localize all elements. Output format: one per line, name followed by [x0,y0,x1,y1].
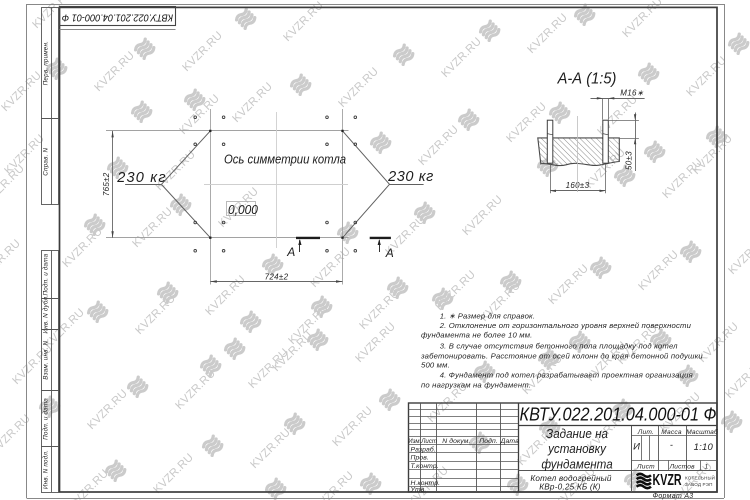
svg-text:Подп. и дата: Подп. и дата [42,253,50,295]
svg-text:Дата: Дата [500,438,519,445]
svg-text:Подп. и дата: Подп. и дата [42,398,50,440]
svg-text:Задание на: Задание на [546,426,608,440]
svg-text:Перв. примен.: Перв. примен. [43,41,50,85]
svg-text:установку: установку [547,441,607,455]
svg-text:Инв. N дубл.: Инв. N дубл. [42,295,50,334]
svg-text:Формат А3: Формат А3 [652,493,693,500]
svg-text:N докум.: N докум. [442,437,470,445]
svg-text:500 мм.: 500 мм. [421,360,450,369]
svg-text:Изм.Лист: Изм.Лист [408,438,437,445]
svg-text:КВр-0,25 КБ (К): КВр-0,25 КБ (К) [539,482,601,491]
svg-text:Подп.: Подп. [479,437,498,445]
svg-text:KVZR: KVZR [653,471,682,488]
svg-text:Пров.: Пров. [411,455,429,462]
svg-text:4. Фундамент под котел разраба: 4. Фундамент под котел разрабатывает про… [440,371,693,380]
svg-text:Лист: Лист [636,463,655,470]
svg-text:1: 1 [704,463,708,470]
svg-text:230 кг: 230 кг [387,169,434,185]
svg-text:фундамента не более 10 мм.: фундамента не более 10 мм. [421,331,533,340]
svg-text:765±2: 765±2 [102,172,111,196]
svg-text:0,000: 0,000 [228,202,258,217]
svg-text:2. Отклонение от горизонтально: 2. Отклонение от горизонтального уровня … [439,321,692,330]
svg-text:Ось симметрии котла: Ось симметрии котла [224,152,346,167]
svg-text:А: А [385,246,394,260]
svg-text:724±2: 724±2 [265,272,289,281]
svg-text:ЗАВОД РЭП: ЗАВОД РЭП [685,482,713,487]
svg-text:КВТУ.022.201.04.000-01 Ф: КВТУ.022.201.04.000-01 Ф [62,11,174,22]
svg-text:-: - [670,440,673,450]
svg-text:А-А (1:5): А-А (1:5) [557,70,617,87]
svg-text:Лит.: Лит. [637,429,654,436]
svg-text:КОТЕЛЬНЫЙ: КОТЕЛЬНЫЙ [685,473,715,480]
svg-text:А: А [286,245,295,259]
svg-text:КВТУ.022.201.04.000-01 Ф: КВТУ.022.201.04.000-01 Ф [520,403,717,424]
svg-text:Утв.: Утв. [410,486,427,493]
svg-text:забетонировать. Расстояние от: забетонировать. Расстояние от осей колон… [420,352,703,361]
svg-text:230 кг: 230 кг [116,170,166,186]
svg-text:Масса: Масса [661,429,682,436]
svg-text:Т.контр.: Т.контр. [411,463,439,470]
svg-text:по нагрузкам на фундамент.: по нагрузкам на фундамент. [421,380,531,389]
svg-text:1:10: 1:10 [694,442,714,453]
svg-text:Инв. N подл.: Инв. N подл. [42,450,50,489]
svg-text:Взам. инв. N: Взам. инв. N [43,340,50,379]
svg-text:50±3: 50±3 [625,151,634,170]
svg-text:И: И [633,442,640,453]
svg-text:Разраб.: Разраб. [411,445,436,453]
svg-text:3. В случае отсутствия бетонно: 3. В случае отсутствия бетонного пола пл… [440,342,678,351]
svg-text:фундамента: фундамента [541,457,613,471]
svg-text:М16∗: М16∗ [620,89,643,98]
svg-text:Листов: Листов [669,463,696,470]
svg-text:Масштаб: Масштаб [686,428,718,436]
svg-text:1. ∗ Размер для справок.: 1. ∗ Размер для справок. [440,311,535,320]
svg-text:Справ. N: Справ. N [43,148,50,176]
